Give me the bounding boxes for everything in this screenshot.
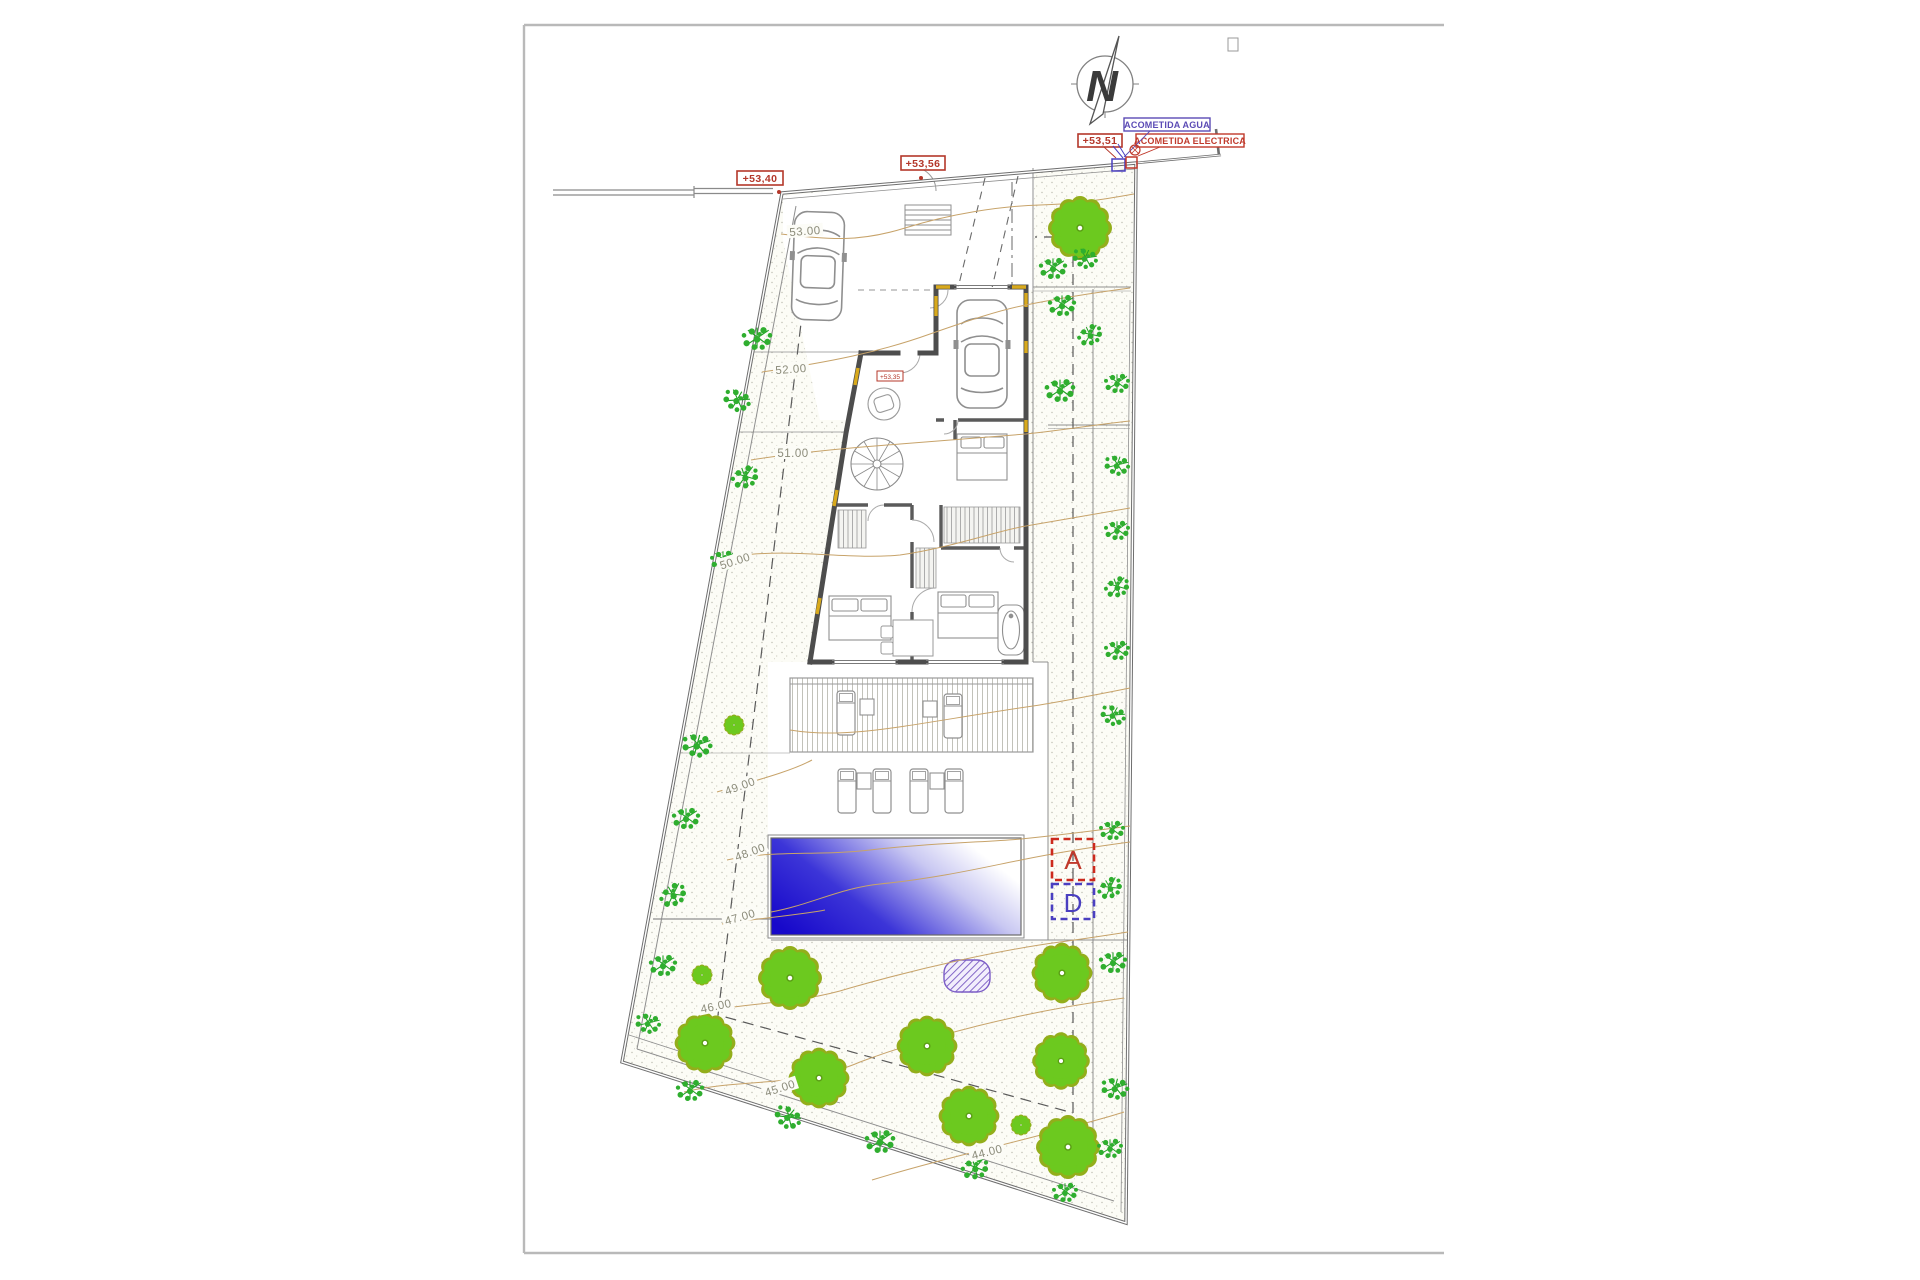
floor-level-tag: +53,35 [877, 371, 903, 381]
svg-text:+53,40: +53,40 [743, 173, 778, 185]
sun-lounger [837, 691, 855, 735]
armchair [868, 388, 900, 420]
level-marker-53-56: +53,56 [901, 156, 945, 180]
wood-deck [790, 678, 1033, 752]
svg-text:A: A [1064, 845, 1082, 875]
contour-label-52: 52.00 [775, 363, 807, 377]
spa-jacuzzi [944, 960, 990, 992]
bed [957, 434, 1007, 480]
street-edge-lines [553, 186, 773, 198]
level-marker-53-51: +53,51 [1078, 134, 1122, 158]
sun-lounger [944, 694, 962, 738]
svg-text:+53,51: +53,51 [1083, 135, 1118, 147]
svg-text:+53,35: +53,35 [880, 374, 900, 381]
utility-pole-marker [1228, 38, 1238, 51]
acometida-agua-label: ACOMETIDA AGUA [1124, 120, 1210, 130]
acometida-electrica-label: ACOMETIDA ELECTRICA [1134, 136, 1246, 146]
side-table [860, 699, 874, 715]
side-table [923, 701, 937, 717]
contour-label-53: 53.00 [789, 225, 821, 239]
level-marker-53-40: +53,40 [737, 171, 783, 194]
bathtub [998, 605, 1024, 655]
contour-label-51: 51.00 [777, 448, 808, 460]
bed [938, 592, 998, 638]
north-compass-icon: N [1071, 36, 1139, 124]
svg-text:D: D [1064, 888, 1083, 918]
north-letter: N [1086, 62, 1119, 111]
site-plan-drawing: +53,35 [0, 0, 1920, 1280]
entry-steps [905, 205, 951, 235]
svg-text:+53,56: +53,56 [906, 158, 941, 170]
site-plan-page: +53,35 [0, 0, 1920, 1280]
swimming-pool [768, 835, 1024, 938]
